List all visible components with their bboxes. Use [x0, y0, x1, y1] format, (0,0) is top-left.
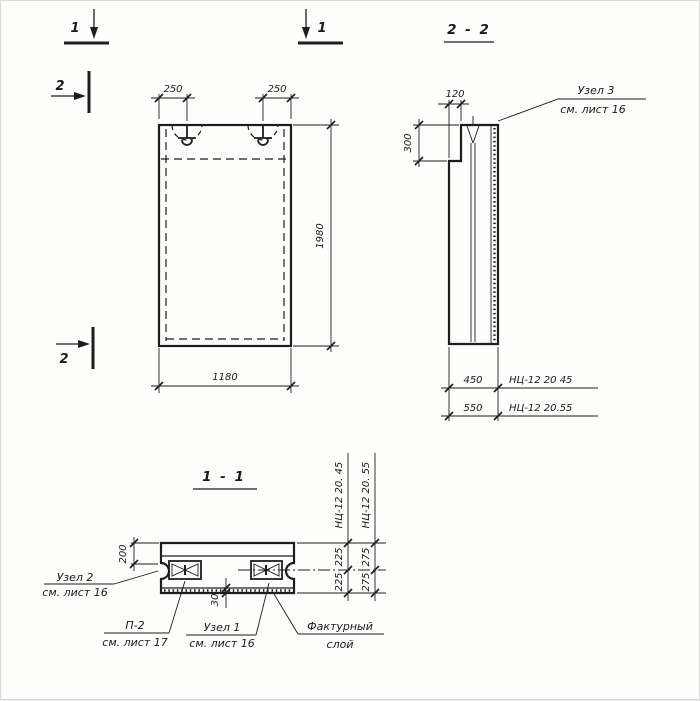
dim-text: 275	[361, 572, 372, 591]
joint-channel-lines	[471, 143, 475, 342]
dim-edge: 200	[118, 537, 159, 571]
dim-text: 300	[403, 133, 414, 152]
dim-text: 120	[445, 89, 464, 100]
section-title: 2 - 2	[447, 22, 491, 38]
section-2-2: 2 - 2 120 300 450 НЦ-12 20 45	[403, 22, 646, 421]
variant-label: НЦ-12 20 45	[509, 375, 572, 386]
dim-text: 200	[118, 544, 129, 563]
callout-text: слой	[327, 638, 354, 651]
section-mark-2-top: 2	[51, 71, 89, 113]
dim-rebate-width: 120	[438, 89, 469, 158]
opening-right	[251, 561, 282, 579]
dim-text: 275	[361, 547, 372, 566]
dim-text: 450	[463, 375, 482, 386]
opening-left	[169, 561, 201, 579]
callout-text: см. лист 17	[102, 636, 167, 649]
panel-drawing: 1 1 2 2	[1, 1, 700, 701]
callout-text: см. лист 16	[560, 103, 625, 116]
section-title: 1 - 1	[202, 469, 246, 485]
dim-text: 1980	[315, 223, 326, 248]
callout-text: Узел 2	[57, 571, 94, 584]
callout-p2: П-2 см. лист 17	[102, 581, 185, 649]
drawing-sheet: 1 1 2 2	[0, 0, 700, 700]
section-mark-1-right: 1	[298, 9, 343, 43]
dim-width: 1180	[151, 348, 299, 393]
dim-hook-left: 250	[151, 84, 195, 121]
dim-text: 250	[163, 84, 182, 95]
panel-outline	[159, 125, 291, 346]
thickness-variants: 450 НЦ-12 20 45 550 НЦ-12 20.55	[441, 347, 598, 421]
variant-label: НЦ-12 20. 55	[361, 462, 372, 529]
dim-rebate-height: 300	[403, 119, 459, 167]
thickness-variant-columns: 225 225 275 275 НЦ-12 20. 45 НЦ-12 20. 5…	[297, 453, 386, 601]
top-groove	[467, 116, 479, 143]
callout-text: П-2	[125, 619, 144, 632]
section-mark-2-bottom: 2	[56, 327, 93, 369]
section-mark-label: 2	[59, 352, 68, 367]
dim-text: 225	[334, 572, 345, 591]
callout-text: Узел 3	[578, 84, 615, 97]
variant-label: НЦ-12 20. 45	[334, 462, 345, 529]
lifting-hook-right	[248, 125, 278, 145]
lifting-hook-left	[172, 125, 202, 145]
callout-node3: Узел 3 см. лист 16	[498, 84, 646, 121]
dim-text: 550	[463, 403, 482, 414]
dim-text: 1180	[212, 372, 237, 383]
callout-text: Фактурный	[307, 620, 373, 633]
variant-label: НЦ-12 20.55	[509, 403, 572, 414]
callout-facture: Фактурный слой	[274, 594, 384, 651]
callout-text: см. лист 16	[189, 637, 254, 650]
dim-text: 225	[334, 547, 345, 566]
section-1-1: 1 - 1 200 30	[42, 453, 386, 651]
section-mark-1-left: 1	[64, 9, 109, 43]
dim-text: 30	[210, 594, 221, 607]
front-view: 250 250 1980 1180	[151, 84, 339, 393]
dim-height: 1980	[293, 119, 339, 352]
callout-node2: Узел 2 см. лист 16	[42, 571, 158, 599]
section-mark-label: 2	[55, 79, 64, 94]
section-mark-label: 1	[317, 21, 326, 36]
callout-text: см. лист 16	[42, 586, 107, 599]
section-mark-label: 1	[70, 21, 79, 36]
dim-text: 250	[267, 84, 286, 95]
callout-text: Узел 1	[204, 621, 241, 634]
dim-hook-right: 250	[255, 84, 299, 121]
